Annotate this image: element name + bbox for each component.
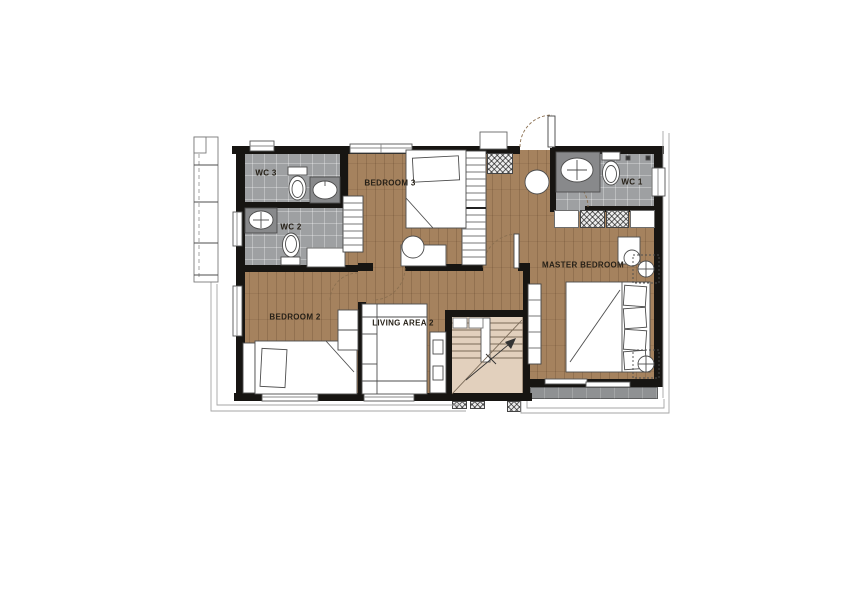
wc2-counter-icon: [307, 248, 345, 267]
wc3-sink-icon: [310, 177, 340, 203]
room-label-living-area2: LIVING AREA 2: [372, 319, 434, 328]
room-label-master-bedroom: MASTER BEDROOM: [542, 261, 624, 270]
wc2-toilet-icon: [281, 233, 300, 265]
room-label-wc1: WC 1: [621, 178, 642, 187]
master-console-icon: [528, 284, 541, 364]
wc3-toilet-icon: [288, 167, 307, 200]
wc2-sink-icon: [245, 208, 277, 233]
bedroom2-shelf-icon: [338, 310, 358, 350]
living-console-icon: [430, 332, 446, 393]
sliding-door-icon: [545, 379, 630, 387]
room-label-bedroom3: BEDROOM 3: [364, 179, 415, 188]
staircase-icon: [452, 318, 523, 394]
plan-linework: [0, 0, 842, 595]
room-label-wc3: WC 3: [255, 169, 276, 178]
hall-stool-icon: [525, 170, 549, 194]
bedroom3-bed-icon: [406, 150, 466, 228]
linen-closet-icon: [343, 196, 363, 252]
room-label-wc2: WC 2: [280, 223, 301, 232]
floor-plan-canvas: WC 3 WC 2 BEDROOM 3 WC 1 MASTER BEDROOM …: [0, 0, 842, 595]
wc1-sink-icon: [556, 152, 600, 192]
master-bed-icon: [566, 282, 650, 372]
room-label-bedroom2: BEDROOM 2: [269, 313, 320, 322]
bedroom3-desk-icon: [401, 236, 446, 266]
trellis-screen-icon: [194, 137, 218, 282]
sofa-icon: [362, 304, 427, 394]
